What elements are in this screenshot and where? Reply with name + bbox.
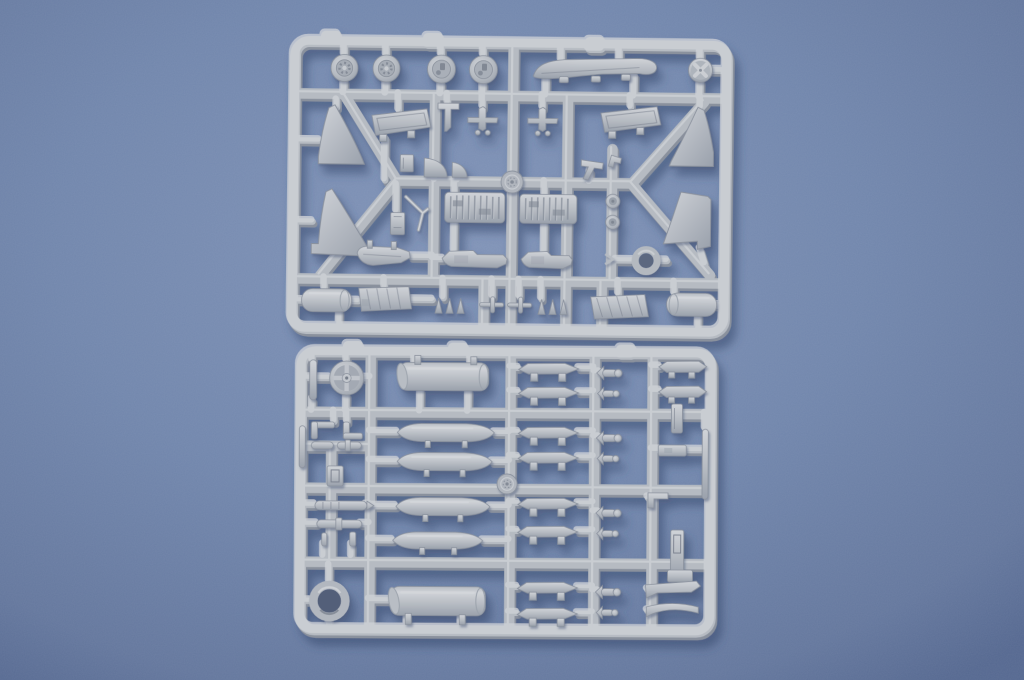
- small-wheel: [606, 215, 620, 229]
- ribbed-rod: [315, 501, 374, 510]
- exhaust-ring: [313, 585, 345, 617]
- rod: [317, 518, 362, 530]
- small-box-part: [390, 213, 404, 235]
- pin: [322, 533, 327, 546]
- ribbed-flap: [590, 294, 648, 320]
- small-wheel: [606, 194, 620, 208]
- spoked-wheel: [330, 361, 364, 395]
- wheel-bay-insert: [520, 194, 577, 224]
- horizontal-bracket: [658, 445, 686, 456]
- main-wheel: [469, 55, 497, 83]
- blade-antenna: [702, 429, 708, 499]
- nozzle-ring: [635, 250, 657, 272]
- main-wheel: [427, 55, 455, 83]
- blade-part: [299, 426, 305, 468]
- gate-boss: [497, 474, 517, 494]
- road-wheel: [373, 55, 400, 82]
- road-wheel: [331, 54, 358, 81]
- photo-canvas: [0, 0, 1024, 680]
- wheel-bay-insert: [445, 192, 505, 223]
- cross-hub-disc: [688, 58, 712, 82]
- ribbed-fairing: [359, 286, 412, 312]
- tank-end-cylinder: [302, 288, 352, 312]
- pin: [350, 532, 356, 546]
- box-part: [327, 466, 343, 486]
- sprue-photo: [0, 0, 1024, 680]
- gate-boss: [501, 171, 523, 193]
- small-panel: [400, 155, 413, 172]
- vertical-bracket: [671, 404, 682, 433]
- tank-end-cylinder: [666, 293, 716, 317]
- blade-part: [310, 360, 317, 400]
